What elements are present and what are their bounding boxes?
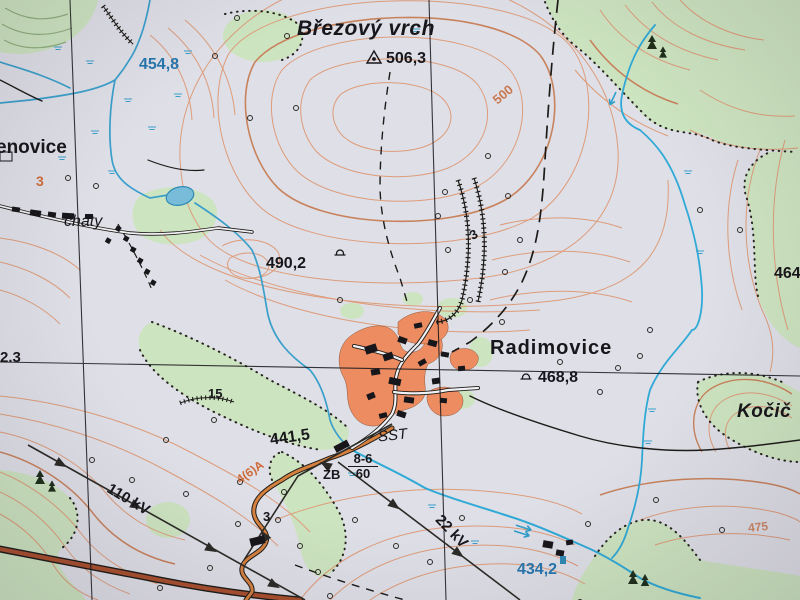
power-lines	[28, 424, 520, 600]
bridge-load-bottom: 60	[348, 466, 378, 481]
water-elevation-434-label: 434,2	[517, 562, 557, 578]
chaty-label: chaty	[64, 214, 102, 230]
chapel-bell-icon	[521, 374, 532, 379]
bridge-material-label: ŽB	[323, 468, 340, 481]
map-graphics	[0, 0, 800, 600]
village-enovice-label: enovice	[0, 138, 67, 157]
contour-475-label: 475	[747, 520, 768, 534]
edge-spot-label: 2.3	[0, 350, 21, 365]
scarp-height-label: 15	[208, 387, 222, 400]
water-elevation-454-label: 454,8	[139, 57, 179, 73]
hairpin-spot-label: 3	[263, 510, 270, 523]
kocici-label: Kočič	[737, 402, 791, 421]
water-tank	[560, 556, 566, 564]
road-number-label: 3	[36, 174, 44, 188]
summit-elevation-label: 506,3	[386, 51, 426, 67]
sst-label: SST	[377, 427, 408, 445]
streams	[0, 0, 702, 598]
spot-464-label: 464	[774, 266, 800, 282]
spot-490-label: 490,2	[266, 256, 306, 272]
bridge-load-label: 8-6 60	[348, 452, 378, 482]
bridge-load-top: 8-6	[348, 452, 378, 466]
summit-name-label: Březový vrch	[297, 18, 435, 39]
topographic-map: Březový vrch 506,3 454,8 enovice 3 chaty…	[0, 0, 800, 600]
spot-468-label: 468,8	[538, 370, 578, 386]
stream-flow-arrow-icons	[513, 91, 619, 539]
marsh-icons	[54, 29, 704, 544]
chapel-bell-icon	[335, 250, 346, 255]
geodetic-triangle-icon	[367, 51, 381, 63]
village-radimovice-label: Radimovice	[490, 338, 612, 358]
